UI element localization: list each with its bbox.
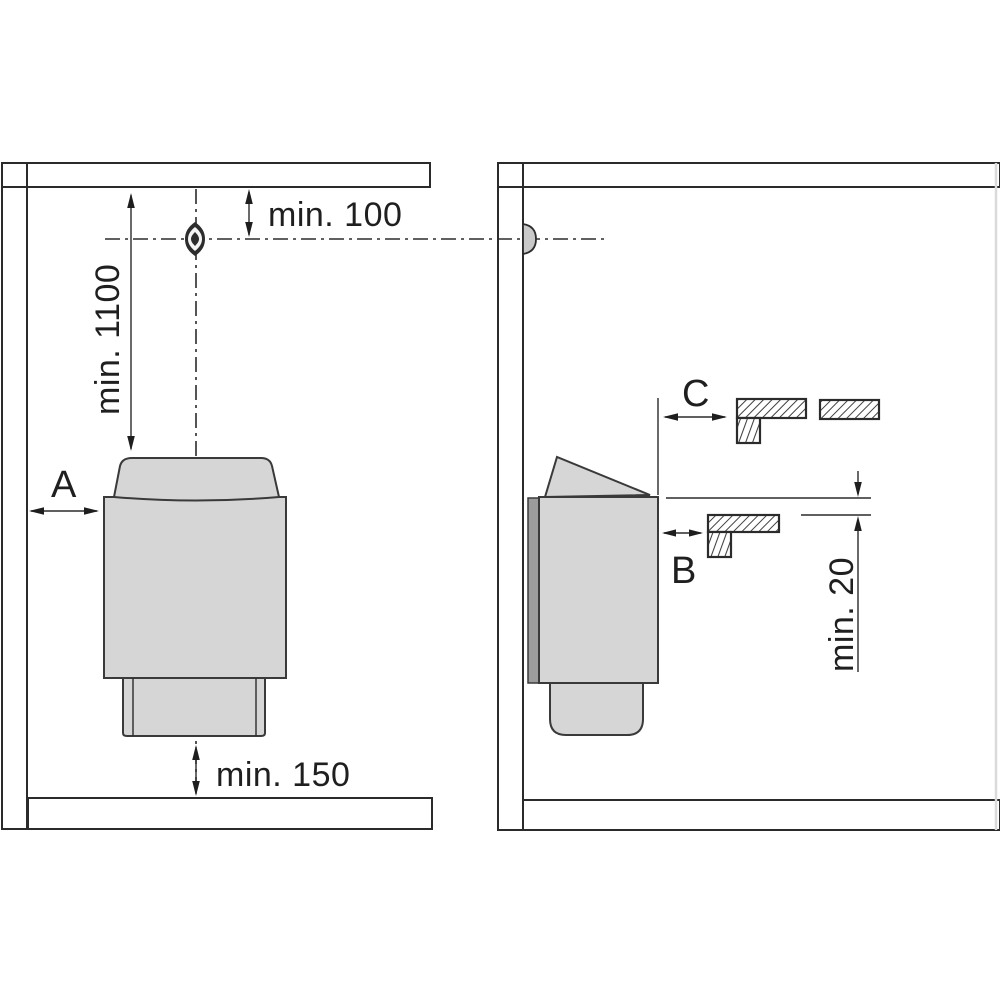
bench-board-profile <box>820 400 879 419</box>
ceiling-corner-log <box>2 163 27 187</box>
clearance-c-label: C <box>682 373 709 415</box>
log-wall <box>498 187 523 830</box>
front-view-panel: min. 100 min. 1100 A min. 150 <box>2 163 609 829</box>
heater-body-side <box>539 497 658 683</box>
clearance-a-label: A <box>51 464 77 506</box>
floor-band <box>523 800 1000 830</box>
side-view-panel: C B min. 20 <box>498 163 1000 830</box>
dimension-b: B <box>662 515 779 592</box>
temperature-sensor-icon <box>185 222 205 256</box>
heater-wall-bracket <box>528 498 539 683</box>
bench-board-l-profile <box>737 399 806 443</box>
heater-side-view <box>528 457 658 735</box>
ceiling-log-band <box>523 163 1000 187</box>
dimension-min-20-text: min. 20 <box>823 557 861 672</box>
ceiling-log-band <box>27 163 430 187</box>
heater-base <box>123 678 265 736</box>
log-wall <box>2 187 27 829</box>
dimension-min-100-text: min. 100 <box>268 196 402 234</box>
dimension-min-100: min. 100 <box>245 189 402 237</box>
dimension-min-150-text: min. 150 <box>216 756 350 794</box>
heater-base-side <box>550 683 643 735</box>
heater-front-view <box>104 458 286 736</box>
dimension-min-150: min. 150 <box>192 745 350 796</box>
ceiling-corner-log <box>498 163 523 187</box>
dimension-min-20: min. 20 <box>666 471 871 672</box>
heater-body <box>104 497 286 678</box>
heater-open-lid-wedge <box>545 457 650 497</box>
bench-board-l-profile <box>708 515 779 557</box>
dimension-c: C <box>658 373 879 495</box>
dimension-min-1100-text: min. 1100 <box>89 264 127 415</box>
clearance-b-label: B <box>671 550 696 592</box>
floor-band <box>28 798 432 829</box>
dimension-min-1100: min. 1100 <box>89 193 135 451</box>
dimension-a: A <box>29 464 99 515</box>
installation-clearance-diagram: min. 100 min. 1100 A min. 150 <box>0 0 1000 1000</box>
heater-top-collar <box>114 458 279 501</box>
wall-sensor-side-icon <box>523 224 536 254</box>
